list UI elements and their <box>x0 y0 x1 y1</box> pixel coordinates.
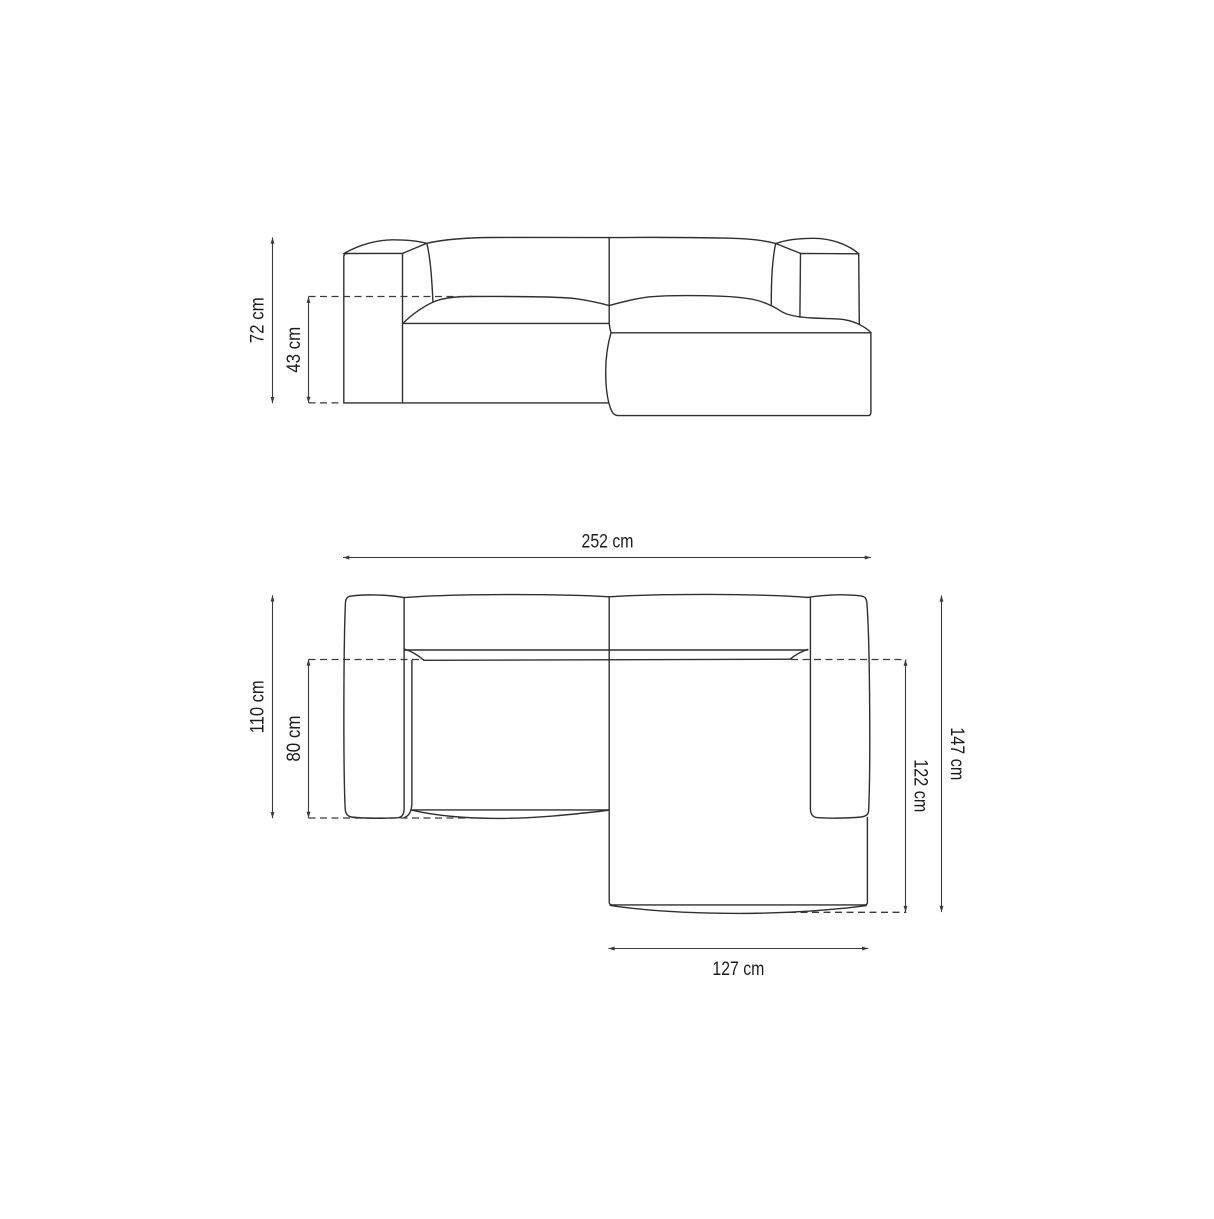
svg-text:72 cm: 72 cm <box>247 297 268 343</box>
svg-text:80 cm: 80 cm <box>284 716 305 762</box>
svg-text:43 cm: 43 cm <box>284 327 305 373</box>
svg-text:110 cm: 110 cm <box>247 680 268 733</box>
svg-text:127 cm: 127 cm <box>712 959 764 980</box>
svg-text:147 cm: 147 cm <box>946 727 967 780</box>
svg-text:122 cm: 122 cm <box>910 759 931 812</box>
svg-text:252 cm: 252 cm <box>582 531 634 552</box>
